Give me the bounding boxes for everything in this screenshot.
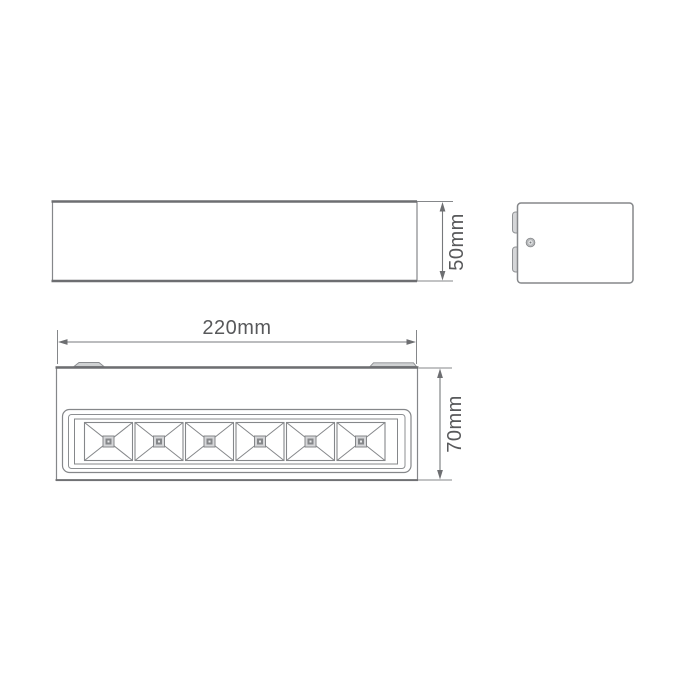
front-view: [56, 363, 419, 481]
top-view: [52, 202, 418, 282]
technical-drawing: 50mm 220mm: [0, 0, 700, 700]
arrowhead-up-icon: [437, 369, 443, 379]
arrowhead-down-icon: [440, 271, 446, 281]
dimension-side-height: 50mm: [417, 202, 468, 282]
dimension-label-body-width: 220mm: [202, 317, 271, 339]
top-view-outline: [53, 202, 418, 282]
led-cell: [337, 423, 385, 461]
drawing-canvas: 50mm 220mm: [0, 0, 700, 700]
mounting-tab: [74, 363, 104, 367]
arrowhead-up-icon: [440, 202, 446, 212]
dimension-body-height: 70mm: [419, 368, 466, 480]
led-cell: [236, 423, 284, 461]
mounting-screw-icon: [526, 238, 535, 247]
dimension-label-body-height: 70mm: [444, 395, 466, 453]
led-cell: [186, 423, 234, 461]
arrowhead-left-icon: [58, 339, 68, 345]
arrowhead-right-icon: [407, 339, 417, 345]
mounting-tab: [370, 363, 417, 367]
dimension-label-side-height: 50mm: [446, 213, 468, 271]
led-cell: [85, 423, 133, 461]
led-cell: [135, 423, 183, 461]
led-cell: [287, 423, 335, 461]
arrowhead-down-icon: [437, 470, 443, 480]
dimension-body-width: 220mm: [58, 317, 417, 364]
side-view: [513, 203, 634, 283]
